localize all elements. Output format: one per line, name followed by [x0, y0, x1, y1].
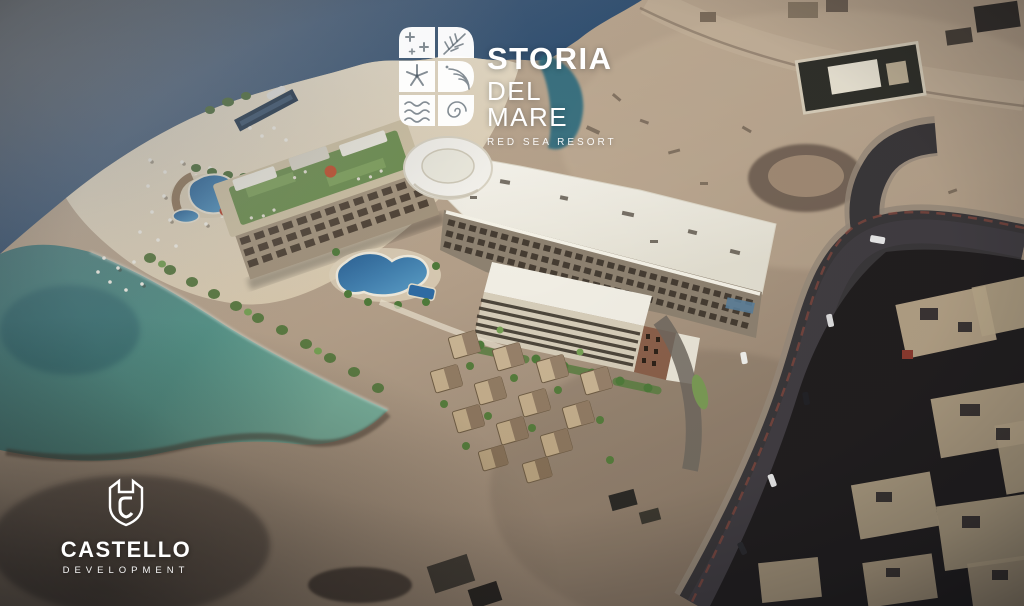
resort-tagline: RED SEA RESORT — [487, 137, 617, 148]
storia-monogram-icon — [399, 27, 477, 129]
developer-name: CASTELLO — [47, 539, 205, 561]
developer-logo: CASTELLO DEVELOPMENT — [47, 476, 205, 576]
resort-name: STORIA — [487, 43, 619, 74]
resort-logo: STORIA DEL MARE RED SEA RESORT — [399, 27, 619, 148]
resort-subname: DEL MARE — [487, 78, 619, 130]
castello-shield-icon — [103, 476, 149, 528]
resort-rendering: STORIA DEL MARE RED SEA RESORT CASTELLO … — [0, 0, 1024, 606]
developer-subname: DEVELOPMENT — [47, 566, 205, 576]
